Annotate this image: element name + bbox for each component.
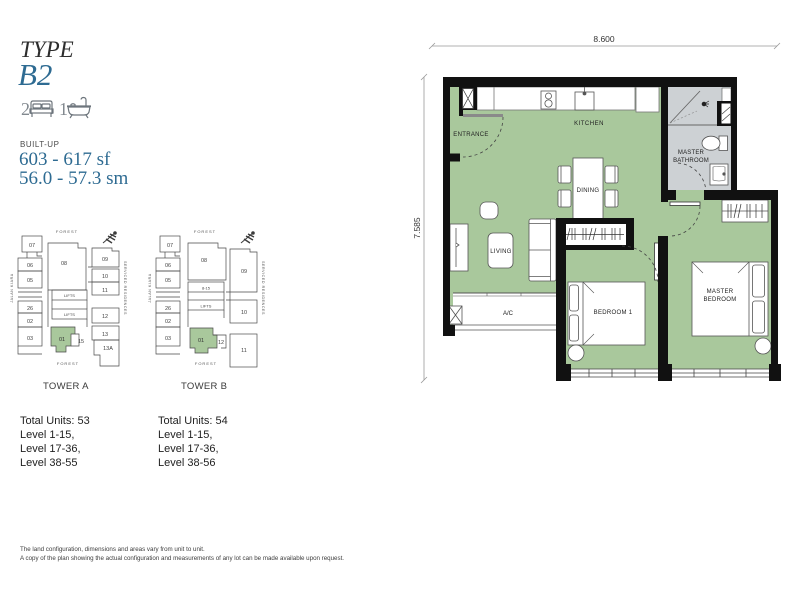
svg-text:06: 06 bbox=[165, 263, 171, 269]
svg-text:7.585: 7.585 bbox=[412, 217, 422, 239]
svg-text:12: 12 bbox=[102, 314, 108, 320]
svg-text:8.600: 8.600 bbox=[593, 34, 615, 44]
svg-text:26: 26 bbox=[165, 306, 171, 312]
svg-text:13: 13 bbox=[102, 332, 108, 338]
svg-text:05: 05 bbox=[165, 278, 171, 284]
svg-text:12: 12 bbox=[218, 340, 224, 346]
svg-text:BEDROOM 1: BEDROOM 1 bbox=[594, 310, 633, 316]
svg-text:JALAN KIARA: JALAN KIARA bbox=[148, 273, 152, 303]
svg-text:LIFTS: LIFTS bbox=[64, 293, 75, 298]
svg-text:A/C: A/C bbox=[503, 311, 514, 317]
svg-text:FOREST: FOREST bbox=[56, 229, 78, 234]
svg-text:LIVING: LIVING bbox=[490, 249, 512, 255]
svg-text:MASTER: MASTER bbox=[678, 150, 705, 156]
svg-text:08: 08 bbox=[61, 261, 67, 267]
svg-text:08: 08 bbox=[201, 258, 207, 264]
svg-text:ENTRANCE: ENTRANCE bbox=[453, 132, 488, 138]
svg-text:07: 07 bbox=[29, 243, 35, 249]
svg-text:09: 09 bbox=[102, 257, 108, 263]
svg-text:01: 01 bbox=[59, 337, 65, 343]
svg-text:02: 02 bbox=[165, 319, 171, 325]
svg-text:13A: 13A bbox=[103, 346, 113, 352]
svg-text:09: 09 bbox=[241, 269, 247, 275]
svg-text:10: 10 bbox=[241, 310, 247, 316]
svg-text:SERVICED RESIDENCES: SERVICED RESIDENCES bbox=[261, 261, 265, 315]
svg-text:SERVICED RESIDENCES: SERVICED RESIDENCES bbox=[123, 261, 127, 315]
svg-text:KITCHEN: KITCHEN bbox=[574, 121, 604, 127]
svg-text:BEDROOM: BEDROOM bbox=[703, 297, 736, 303]
svg-text:11: 11 bbox=[241, 348, 247, 354]
svg-text:JALAN KIARA: JALAN KIARA bbox=[10, 273, 14, 303]
svg-text:26: 26 bbox=[27, 306, 33, 312]
svg-text:15: 15 bbox=[78, 339, 84, 345]
svg-text:FOREST: FOREST bbox=[195, 361, 217, 366]
svg-text:10: 10 bbox=[102, 274, 108, 280]
svg-text:07: 07 bbox=[167, 243, 173, 249]
svg-text:DINING: DINING bbox=[577, 188, 600, 194]
svg-text:FOREST: FOREST bbox=[57, 361, 79, 366]
svg-text:LIFTS: LIFTS bbox=[201, 304, 212, 309]
svg-text:03: 03 bbox=[27, 336, 33, 342]
svg-text:8-15: 8-15 bbox=[202, 286, 211, 291]
svg-text:01: 01 bbox=[198, 338, 204, 344]
svg-text:06: 06 bbox=[27, 263, 33, 269]
svg-text:03: 03 bbox=[165, 336, 171, 342]
svg-text:02: 02 bbox=[27, 319, 33, 325]
svg-text:LIFTS: LIFTS bbox=[64, 312, 75, 317]
svg-text:FOREST: FOREST bbox=[194, 229, 216, 234]
svg-text:11: 11 bbox=[102, 288, 108, 294]
svg-text:05: 05 bbox=[27, 278, 33, 284]
svg-text:MASTER: MASTER bbox=[707, 289, 734, 295]
